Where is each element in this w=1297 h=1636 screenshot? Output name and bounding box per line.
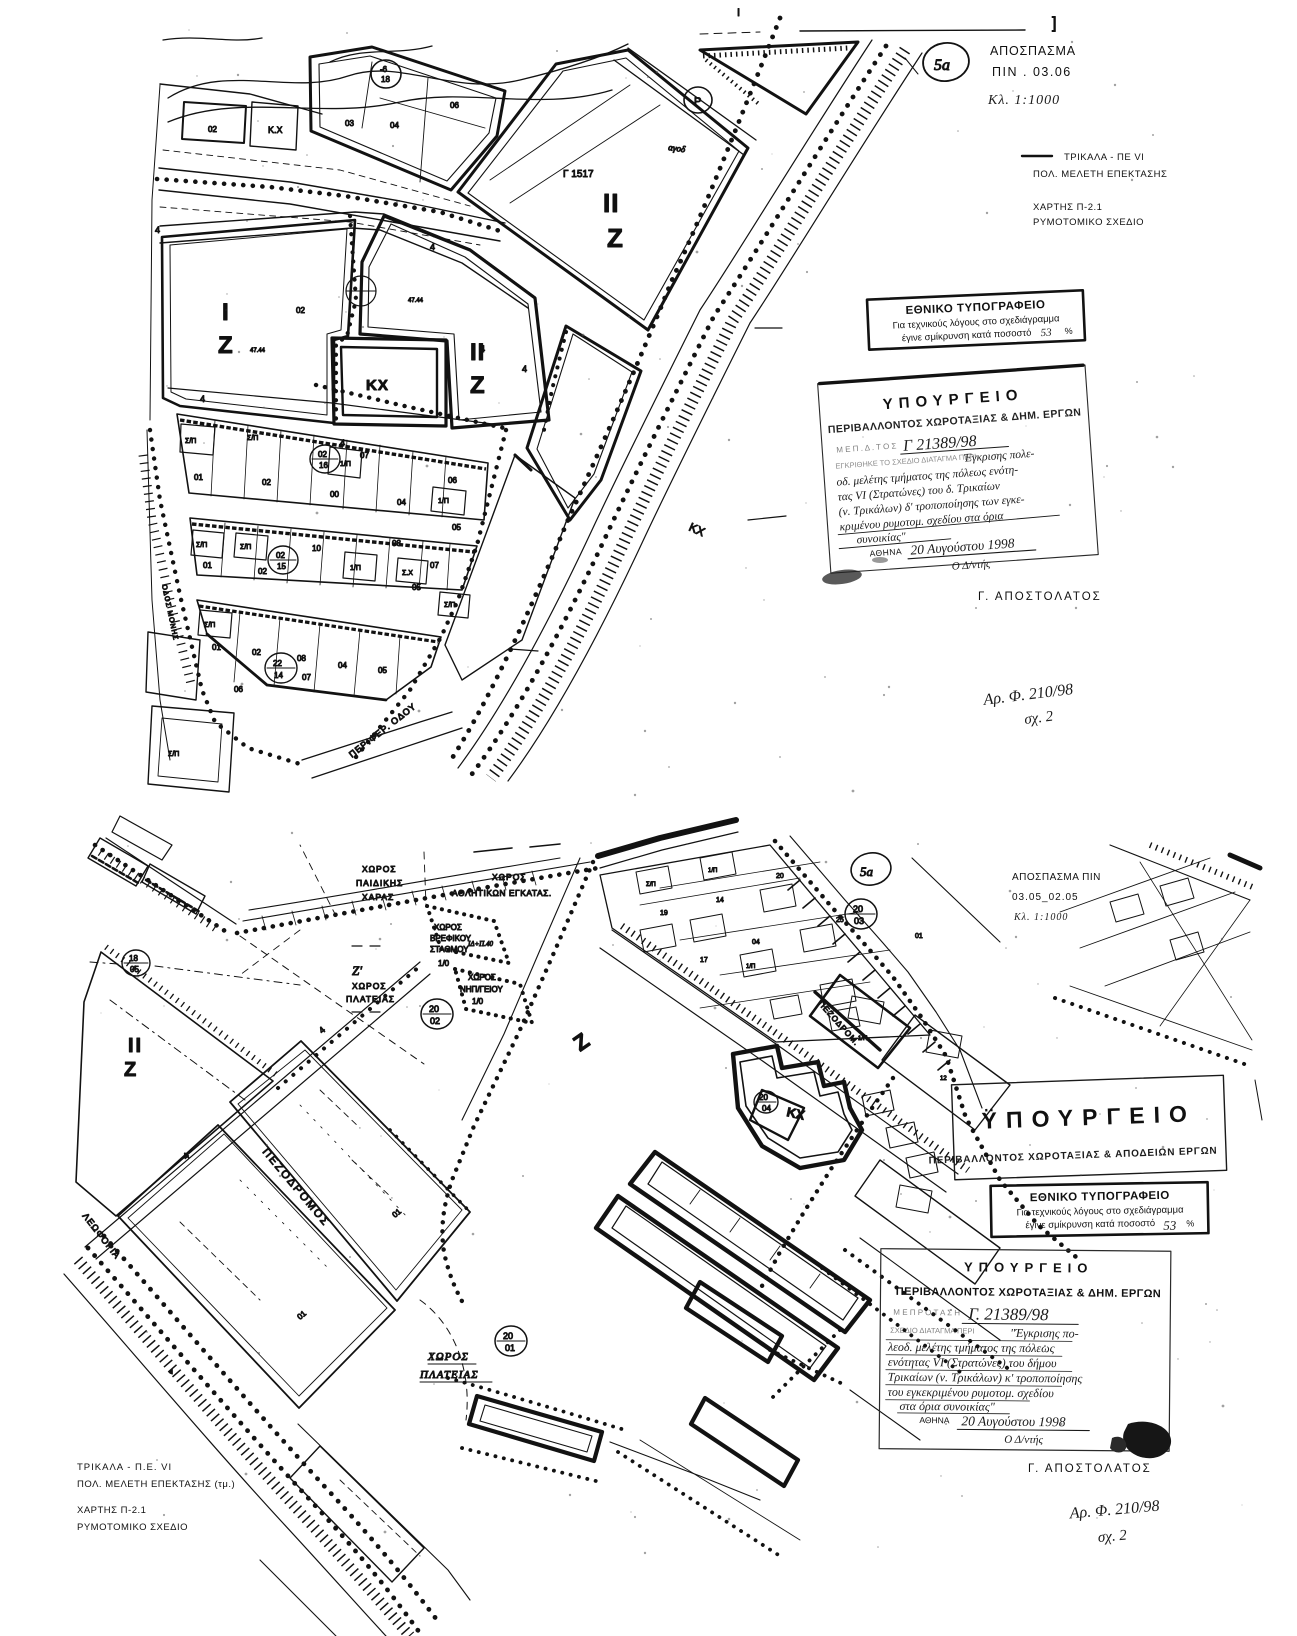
svg-text:1/Π: 1/Π bbox=[350, 565, 361, 572]
svg-text:02: 02 bbox=[318, 450, 327, 459]
svg-text:ΧΑΡΤΗΣ Π-2.1: ΧΑΡΤΗΣ Π-2.1 bbox=[1033, 202, 1102, 213]
svg-text:02: 02 bbox=[262, 478, 271, 487]
svg-text:15: 15 bbox=[277, 562, 286, 571]
svg-text:1/Π: 1/Π bbox=[746, 964, 755, 970]
svg-text:ΠΛΑΤΕΙΑΣ: ΠΛΑΤΕΙΑΣ bbox=[346, 994, 395, 1004]
svg-text:02: 02 bbox=[208, 125, 217, 134]
svg-text:Γ. ΑΠΟΣΤΟΛΑΤΟΣ: Γ. ΑΠΟΣΤΟΛΑΤΟΣ bbox=[1028, 1463, 1152, 1475]
svg-text:04: 04 bbox=[390, 121, 399, 130]
svg-text:έγινε σμίκρυνση κατά ποσοστό: έγινε σμίκρυνση κατά ποσοστό bbox=[1025, 1218, 1155, 1231]
svg-text:5a: 5a bbox=[860, 864, 874, 879]
svg-text:Σ/Π: Σ/Π bbox=[646, 882, 656, 888]
svg-text:ΒΡΕΦΙΚΟΥ: ΒΡΕΦΙΚΟΥ bbox=[430, 934, 472, 943]
svg-text:ΠΙΝ . 03.06: ΠΙΝ . 03.06 bbox=[992, 65, 1072, 79]
svg-text:16: 16 bbox=[319, 461, 328, 470]
svg-text:ΣΤΑΘΜΟΥ: ΣΤΑΘΜΟΥ bbox=[430, 945, 469, 954]
svg-text:Κ.Χ: Κ.Χ bbox=[268, 125, 283, 135]
svg-text:λεοδ. μελέτης τμήματος της πόλ: λεοδ. μελέτης τμήματος της πόλεως bbox=[887, 1340, 1055, 1355]
svg-text:20 Αυγούστου 1998: 20 Αυγούστου 1998 bbox=[961, 1413, 1066, 1429]
svg-text:Γ. ΑΠΟΣΤΟΛΑΤΟΣ: Γ. ΑΠΟΣΤΟΛΑΤΟΣ bbox=[978, 591, 1102, 603]
svg-text:03.05_02.05: 03.05_02.05 bbox=[1012, 892, 1079, 903]
svg-text:53: 53 bbox=[1163, 1218, 1177, 1233]
svg-text:22: 22 bbox=[273, 659, 282, 668]
svg-text:1/Π: 1/Π bbox=[708, 868, 717, 874]
svg-text:ΧΩΡΟΣ: ΧΩΡΟΣ bbox=[468, 973, 496, 982]
svg-text:ΧΩΡΟΣ: ΧΩΡΟΣ bbox=[492, 872, 527, 882]
svg-text:%: % bbox=[1186, 1218, 1194, 1228]
svg-text:1/Π: 1/Π bbox=[340, 461, 351, 468]
svg-text:18: 18 bbox=[129, 954, 138, 963]
svg-text:Γ 1517: Γ 1517 bbox=[563, 169, 594, 180]
svg-text:4: 4 bbox=[155, 225, 160, 235]
svg-text:20: 20 bbox=[853, 904, 863, 914]
svg-text:07: 07 bbox=[360, 451, 369, 460]
svg-text:Σ/Π: Σ/Π bbox=[247, 435, 258, 442]
svg-text:Ζ: Ζ bbox=[218, 332, 233, 359]
svg-text:ΑΠΟΣΠΑΣΜΑ ΠΙΝ: ΑΠΟΣΠΑΣΜΑ ΠΙΝ bbox=[1012, 872, 1101, 883]
svg-text:ΑΠΟΣΠΑΣΜΑ: ΑΠΟΣΠΑΣΜΑ bbox=[990, 44, 1076, 58]
svg-text:08: 08 bbox=[392, 539, 401, 548]
svg-text:]: ] bbox=[1052, 15, 1056, 32]
svg-text:04: 04 bbox=[338, 661, 347, 670]
svg-text:ΧΩΡΟΣ: ΧΩΡΟΣ bbox=[434, 923, 462, 932]
svg-text:1/Π: 1/Π bbox=[858, 1036, 867, 1042]
svg-text:01: 01 bbox=[212, 643, 221, 652]
svg-text:05: 05 bbox=[412, 583, 421, 592]
svg-text:Σ/Π: Σ/Π bbox=[196, 542, 207, 549]
svg-text:ενότητας VI (Στρατώνες) του δή: ενότητας VI (Στρατώνες) του δήμου bbox=[888, 1355, 1057, 1370]
svg-text:ΧΑΡΑΣ: ΧΑΡΑΣ bbox=[362, 892, 394, 902]
svg-text:Ι: Ι bbox=[737, 7, 740, 19]
svg-text:04: 04 bbox=[397, 498, 406, 507]
svg-text:Κλ. 1:1000: Κλ. 1:1000 bbox=[987, 93, 1060, 108]
svg-text:02: 02 bbox=[296, 306, 305, 315]
svg-text:47.44: 47.44 bbox=[408, 298, 424, 304]
svg-text:Ο Δ/ντής: Ο Δ/ντής bbox=[1004, 1434, 1043, 1446]
svg-text:1/0: 1/0 bbox=[472, 997, 484, 1006]
svg-text:ΙΔ+Π.40: ΙΔ+Π.40 bbox=[467, 940, 493, 948]
svg-text:ΥΠΟΥΡΓΕΙΟ: ΥΠΟΥΡΓΕΙΟ bbox=[964, 1259, 1093, 1275]
svg-text:05: 05 bbox=[378, 666, 387, 675]
svg-text:4: 4 bbox=[430, 242, 435, 252]
svg-text:"Έγκρισης πο-: "Έγκρισης πο- bbox=[1010, 1326, 1079, 1341]
svg-text:1/Π: 1/Π bbox=[438, 498, 449, 505]
svg-text:00: 00 bbox=[330, 490, 339, 499]
svg-text:-6: -6 bbox=[380, 65, 388, 74]
svg-text:4: 4 bbox=[200, 394, 205, 404]
svg-text:Ζ: Ζ bbox=[607, 223, 623, 253]
svg-text:14: 14 bbox=[716, 897, 724, 904]
svg-text:03: 03 bbox=[345, 119, 354, 128]
svg-text:Ζ: Ζ bbox=[124, 1059, 136, 1081]
svg-text:ΠΕΡΙΒΑΛΛΟΝΤΟΣ ΧΩΡΟΤΑΞΙΑΣ & ΔΗΜ: ΠΕΡΙΒΑΛΛΟΝΤΟΣ ΧΩΡΟΤΑΞΙΑΣ & ΔΗΜ. ΕΡΓΩΝ bbox=[896, 1286, 1161, 1300]
svg-text:20: 20 bbox=[503, 1331, 513, 1341]
svg-text:ΧΩΡΟΣ: ΧΩΡΟΣ bbox=[352, 981, 387, 991]
svg-text:06: 06 bbox=[450, 101, 459, 110]
svg-text:ΙΙ: ΙΙ bbox=[128, 1035, 143, 1057]
svg-text:47.44: 47.44 bbox=[250, 348, 266, 354]
svg-text:ΠΟΛ. ΜΕΛΕΤΗ ΕΠΕΚΤΑΣΗΣ (τμ.): ΠΟΛ. ΜΕΛΕΤΗ ΕΠΕΚΤΑΣΗΣ (τμ.) bbox=[77, 1479, 235, 1490]
svg-text:4: 4 bbox=[480, 344, 485, 354]
svg-text:19: 19 bbox=[660, 910, 668, 917]
svg-text:του εγκεκριμένου ρυμοτομ. σχεδ: του εγκεκριμένου ρυμοτομ. σχεδίου bbox=[888, 1385, 1055, 1400]
svg-text:1/0: 1/0 bbox=[438, 959, 450, 968]
svg-text:ΠΑΙΔΙΚΗΣ: ΠΑΙΔΙΚΗΣ bbox=[356, 878, 403, 888]
svg-text:Σ/Π: Σ/Π bbox=[240, 544, 251, 551]
svg-text:02: 02 bbox=[252, 648, 261, 657]
svg-text:05: 05 bbox=[452, 523, 461, 532]
svg-text:Σ/Π: Σ/Π bbox=[444, 602, 455, 609]
svg-text:ΡΥΜΟΤΟΜΙΚΟ ΣΧΕΔΙΟ: ΡΥΜΟΤΟΜΙΚΟ ΣΧΕΔΙΟ bbox=[1033, 217, 1144, 228]
svg-text:01: 01 bbox=[194, 473, 203, 482]
svg-text:Σ/Π: Σ/Π bbox=[204, 622, 215, 629]
svg-text:Ι: Ι bbox=[222, 299, 229, 326]
svg-text:Σ.Χ: Σ.Χ bbox=[402, 570, 413, 577]
svg-text:20: 20 bbox=[429, 1004, 439, 1014]
svg-text:02: 02 bbox=[430, 1016, 440, 1026]
svg-text:ΠΟΛ. ΜΕΛΕΤΗ ΕΠΕΚΤΑΣΗΣ: ΠΟΛ. ΜΕΛΕΤΗ ΕΠΕΚΤΑΣΗΣ bbox=[1033, 169, 1167, 180]
svg-text:20: 20 bbox=[759, 1093, 768, 1102]
svg-text:4: 4 bbox=[522, 364, 527, 374]
svg-text:Ζ': Ζ' bbox=[352, 963, 362, 978]
svg-text:01: 01 bbox=[203, 561, 212, 570]
svg-text:10: 10 bbox=[312, 544, 321, 553]
svg-text:ΚΧ: ΚΧ bbox=[366, 377, 389, 394]
svg-text:ΙΙ: ΙΙ bbox=[603, 188, 619, 218]
svg-text:05: 05 bbox=[130, 965, 139, 974]
svg-text:04: 04 bbox=[752, 939, 760, 946]
svg-text:08: 08 bbox=[297, 654, 306, 663]
svg-text:04: 04 bbox=[762, 1104, 771, 1113]
svg-text:ΑΘΛΗΤΙΚΩΝ ΕΓΚΑΤΑΣ.: ΑΘΛΗΤΙΚΩΝ ΕΓΚΑΤΑΣ. bbox=[452, 888, 552, 898]
svg-text:07: 07 bbox=[430, 561, 439, 570]
svg-text:Γ. 21389/98: Γ. 21389/98 bbox=[967, 1304, 1049, 1324]
svg-text:01: 01 bbox=[505, 1343, 515, 1353]
svg-text:Κλ. 1:1000: Κλ. 1:1000 bbox=[1013, 912, 1068, 923]
svg-text:53: 53 bbox=[1040, 327, 1052, 339]
svg-text:01: 01 bbox=[915, 933, 923, 940]
svg-text:Ζ: Ζ bbox=[470, 372, 485, 399]
svg-text:06: 06 bbox=[448, 476, 457, 485]
svg-text:ΧΩΡΟΣ: ΧΩΡΟΣ bbox=[362, 864, 397, 874]
svg-text:%: % bbox=[1064, 326, 1072, 336]
svg-text:02: 02 bbox=[276, 551, 285, 560]
svg-text:ΣΧΕΔΙΟ ΔΙΑΤΑΓΜΑ ΠΕΡΙ: ΣΧΕΔΙΟ ΔΙΑΤΑΓΜΑ ΠΕΡΙ bbox=[890, 1326, 974, 1336]
svg-text:Τρικαίων (ν. Τρικάλων) κ' τροπ: Τρικαίων (ν. Τρικάλων) κ' τροποποίησης bbox=[888, 1370, 1083, 1386]
svg-text:ΡΥΜΟΤΟΜΙΚΟ ΣΧΕΔΙΟ: ΡΥΜΟΤΟΜΙΚΟ ΣΧΕΔΙΟ bbox=[77, 1522, 188, 1533]
svg-text:ΤΡΙΚΑΛΑ - Π.Ε. VI: ΤΡΙΚΑΛΑ - Π.Ε. VI bbox=[77, 1462, 172, 1473]
svg-text:ΤΡΙΚΑΛΑ - ΠΕ VI: ΤΡΙΚΑΛΑ - ΠΕ VI bbox=[1064, 152, 1144, 163]
svg-text:ΧΑΡΤΗΣ Π-2.1: ΧΑΡΤΗΣ Π-2.1 bbox=[77, 1505, 146, 1516]
svg-text:12: 12 bbox=[940, 1076, 947, 1082]
svg-text:ΧΩΡΟΣ: ΧΩΡΟΣ bbox=[427, 1351, 469, 1363]
svg-text:Σ/Π: Σ/Π bbox=[185, 438, 196, 445]
svg-text:07: 07 bbox=[302, 673, 311, 682]
svg-text:17: 17 bbox=[700, 957, 708, 964]
svg-text:18: 18 bbox=[381, 75, 390, 84]
svg-text:στα όρια συνοικίας": στα όρια συνοικίας" bbox=[899, 1399, 995, 1414]
svg-text:14: 14 bbox=[274, 671, 283, 680]
svg-text:ΝΗΠ/ΓΕΙΟΥ: ΝΗΠ/ΓΕΙΟΥ bbox=[460, 985, 503, 994]
svg-text:03: 03 bbox=[854, 916, 864, 926]
svg-text:06: 06 bbox=[234, 685, 243, 694]
svg-text:σχ. 2: σχ. 2 bbox=[1097, 1527, 1128, 1546]
svg-text:02: 02 bbox=[258, 567, 267, 576]
svg-text:5a: 5a bbox=[934, 57, 950, 74]
svg-text:ΕΘΝΙΚΟ ΤΥΠΟΓΡΑΦΕΙΟ: ΕΘΝΙΚΟ ΤΥΠΟΓΡΑΦΕΙΟ bbox=[1030, 1190, 1170, 1204]
svg-text:20: 20 bbox=[776, 873, 784, 880]
